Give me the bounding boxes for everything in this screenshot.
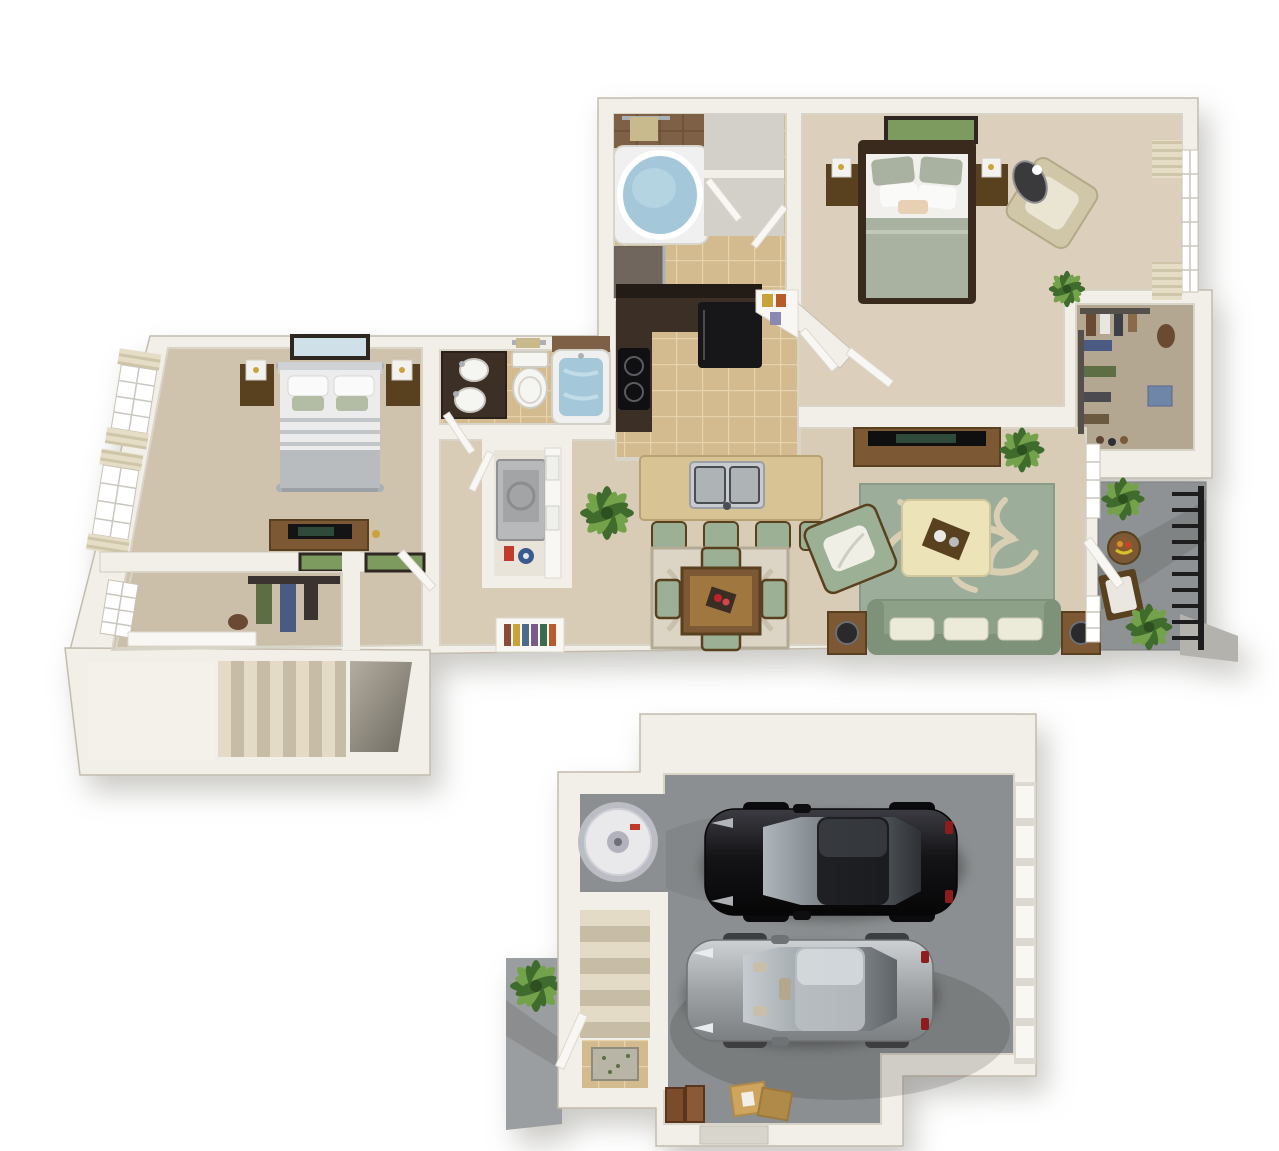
cup [949, 537, 959, 547]
potted-plant [1049, 271, 1085, 307]
bar-stool [756, 522, 790, 550]
stair-step [244, 661, 257, 757]
suitcase [686, 1086, 704, 1122]
stair-step [231, 661, 244, 757]
dining-area [652, 548, 788, 650]
taillight [945, 821, 953, 834]
sofa [868, 600, 1060, 654]
staircase-up [580, 910, 650, 1038]
blanket [280, 450, 380, 488]
exterior-walkway [506, 958, 562, 1130]
pillow [919, 156, 963, 186]
stair-step [580, 974, 650, 990]
speaker [836, 622, 858, 644]
closet-divider-wall [704, 170, 784, 178]
tv-screen-reflection [896, 434, 956, 443]
cereal-box [762, 294, 773, 307]
cereal-box [770, 312, 781, 325]
soaking-tub [552, 350, 610, 424]
stair-step [335, 661, 346, 757]
black-sedan [701, 802, 965, 922]
stair-step [580, 910, 650, 926]
stair-step [218, 661, 231, 757]
closet-rod [248, 576, 340, 584]
lamp-bulb [399, 367, 405, 373]
bed [858, 140, 976, 304]
door-panel [1016, 826, 1034, 858]
hanging-garment [256, 584, 272, 624]
side-mirror [771, 1037, 789, 1046]
curtain [1152, 262, 1182, 300]
garage-door [1014, 782, 1036, 1064]
throw-pillow [998, 618, 1042, 640]
towel [630, 117, 658, 141]
shoe [1108, 438, 1116, 446]
door-panel [1016, 866, 1034, 898]
cereal-box [776, 294, 786, 307]
side-mirror [793, 804, 811, 813]
bookshelf-niche [496, 618, 564, 652]
alcove-wall [574, 892, 668, 910]
book [504, 624, 511, 646]
dining-chair [656, 580, 680, 618]
bar-stool [652, 522, 686, 550]
side-mirror [793, 911, 811, 920]
handbag [228, 614, 248, 630]
dresser-with-tv [270, 520, 380, 550]
tub-water-ripple [632, 168, 676, 208]
stair-step [580, 958, 650, 974]
stair-wall [650, 908, 668, 1090]
suitcase [666, 1088, 684, 1122]
faucet [723, 502, 731, 510]
closet-shelf [128, 632, 256, 646]
faucet [459, 361, 465, 367]
potted-plant [580, 486, 634, 540]
stairwell [88, 661, 412, 760]
cup [934, 530, 946, 542]
pillow [871, 156, 915, 186]
bistro-table [1108, 532, 1140, 564]
bar-stool [704, 522, 738, 550]
lamp-bulb [988, 164, 994, 170]
bucket-lid [523, 553, 529, 559]
hanging-garment [304, 584, 318, 620]
stair-step [283, 661, 296, 757]
door-panel [1016, 786, 1034, 818]
water-heater [578, 802, 658, 882]
accent-pillow [898, 200, 928, 214]
laundry-closet [469, 438, 572, 588]
pillow [288, 376, 328, 396]
hanging-garment [1114, 314, 1123, 336]
stair-step [296, 661, 309, 757]
tub-faucet [578, 353, 584, 359]
box-label [741, 1091, 755, 1107]
car-seat [753, 1006, 767, 1016]
water-heater-alcove [574, 794, 668, 910]
garage-floor-plan [506, 714, 1036, 1146]
double-sink [690, 462, 764, 510]
door-stoop [700, 1126, 768, 1144]
lamp-bulb [838, 164, 844, 170]
basket [546, 456, 559, 480]
shoe [1096, 436, 1104, 444]
sofa-arm [1044, 600, 1060, 654]
hanging-garment [1084, 366, 1116, 377]
balcony [1098, 477, 1238, 662]
shoe [1120, 436, 1128, 444]
flowers [723, 599, 730, 606]
hanging-garment [1128, 314, 1137, 332]
potted-plant [1126, 604, 1173, 651]
roof-sheen [819, 819, 887, 857]
stair-landing [88, 662, 214, 760]
book [522, 624, 529, 646]
detergent [504, 546, 514, 561]
hanging-garment [1084, 392, 1111, 402]
stair-step [580, 926, 650, 942]
potted-plant [999, 427, 1044, 472]
closet-rod [1078, 330, 1084, 434]
taillight [921, 951, 929, 963]
taillight [945, 890, 953, 903]
accent-pillow [336, 396, 368, 411]
stair-step [270, 661, 283, 757]
counter-dark [616, 284, 762, 298]
accent-pillow [292, 396, 324, 411]
floor-plan-image [0, 0, 1279, 1151]
towel [516, 338, 540, 348]
hanging-garment [1086, 314, 1096, 336]
refrigerator [698, 302, 762, 368]
stair-step [580, 1006, 650, 1022]
landing-rug [592, 1048, 638, 1080]
curtain [1152, 140, 1182, 178]
handbag [1157, 324, 1175, 348]
throw-pillow [944, 618, 988, 640]
door-panel [1016, 946, 1034, 978]
potted-plant [1101, 477, 1144, 520]
dresser-decor [372, 530, 380, 538]
ottoman-coffee-table [902, 500, 990, 576]
dining-chair [762, 580, 786, 618]
basket [546, 506, 559, 530]
door-panel [1016, 986, 1034, 1018]
laundry-wall [560, 438, 572, 588]
book [513, 624, 520, 646]
side-mirror [771, 935, 789, 944]
hanging-garment [1084, 414, 1109, 424]
wall-art [292, 336, 368, 358]
car-seat [779, 978, 791, 1000]
mirror-highlight [1032, 165, 1042, 175]
closet-wall [342, 552, 360, 650]
lamp-bulb [253, 367, 259, 373]
hanging-garment [1084, 340, 1112, 351]
hanging-garment [280, 584, 296, 632]
car-seat [753, 962, 767, 972]
heater-valve [630, 824, 640, 830]
floor-plan-svg [0, 0, 1279, 1151]
throw-pillow [890, 618, 934, 640]
gray-sedan [683, 933, 939, 1048]
stair-step [322, 661, 335, 757]
tv-screen-reflection [298, 527, 334, 536]
faucet [453, 391, 459, 397]
pillow [334, 376, 374, 396]
stair-step [257, 661, 270, 757]
stair-step [580, 942, 650, 958]
door-panel [1016, 906, 1034, 938]
bed [276, 362, 384, 492]
taillight [921, 1018, 929, 1030]
hanging-garment [1100, 314, 1110, 334]
roof-sheen [797, 949, 863, 985]
apartment-floor-plan [65, 98, 1238, 775]
wall-art [886, 118, 976, 142]
closet-rod [1080, 308, 1150, 314]
toilet [512, 352, 548, 408]
book [549, 624, 556, 646]
stair-step [309, 661, 322, 757]
stair-step [580, 990, 650, 1006]
staircase-down [218, 661, 346, 757]
sofa-arm [868, 600, 884, 654]
flowers [714, 594, 722, 602]
book [531, 624, 538, 646]
stair-step [580, 1022, 650, 1038]
book [540, 624, 547, 646]
door-panel [1016, 1026, 1034, 1058]
storage-box [1148, 386, 1172, 406]
sink [455, 388, 485, 412]
potted-plant [510, 960, 562, 1012]
